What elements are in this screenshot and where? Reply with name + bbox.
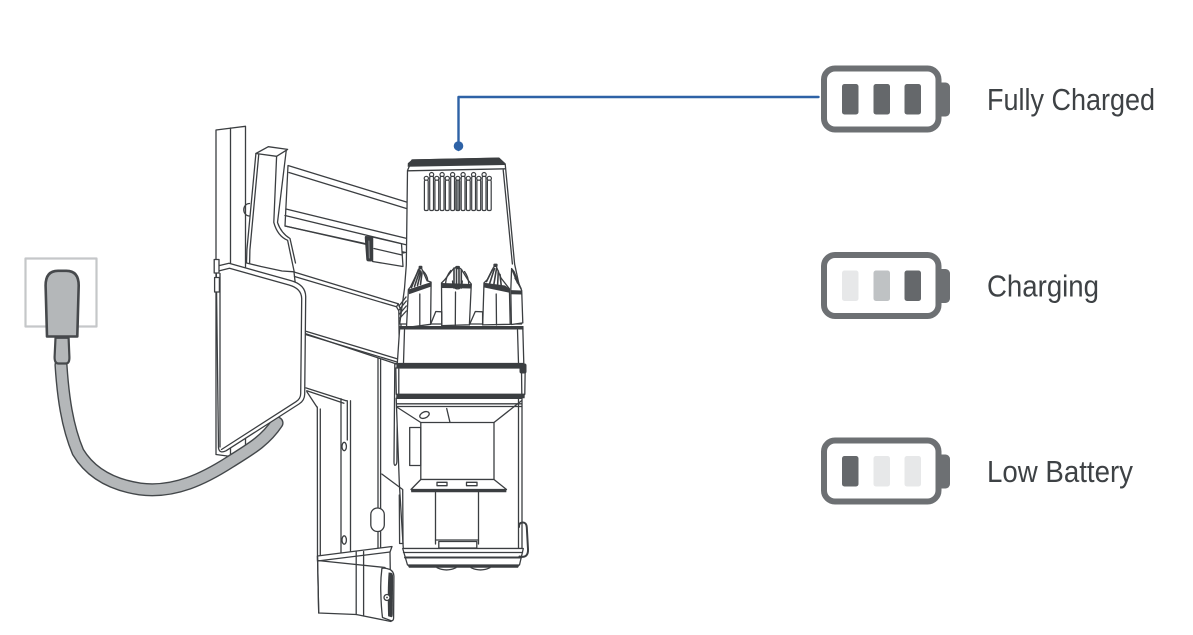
svg-text:Charging: Charging <box>987 270 1099 304</box>
svg-text:Low Battery: Low Battery <box>987 455 1134 489</box>
svg-text:Fully Charged: Fully Charged <box>987 83 1155 117</box>
